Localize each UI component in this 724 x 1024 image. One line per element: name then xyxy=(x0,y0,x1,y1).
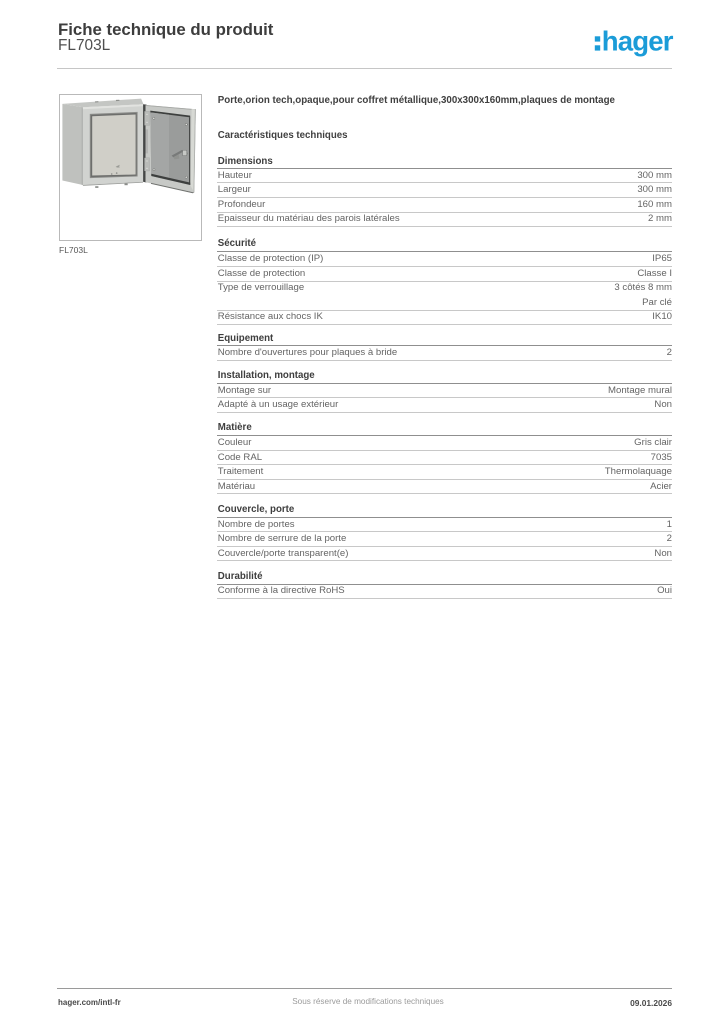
svg-text:hager: hager xyxy=(602,26,674,56)
